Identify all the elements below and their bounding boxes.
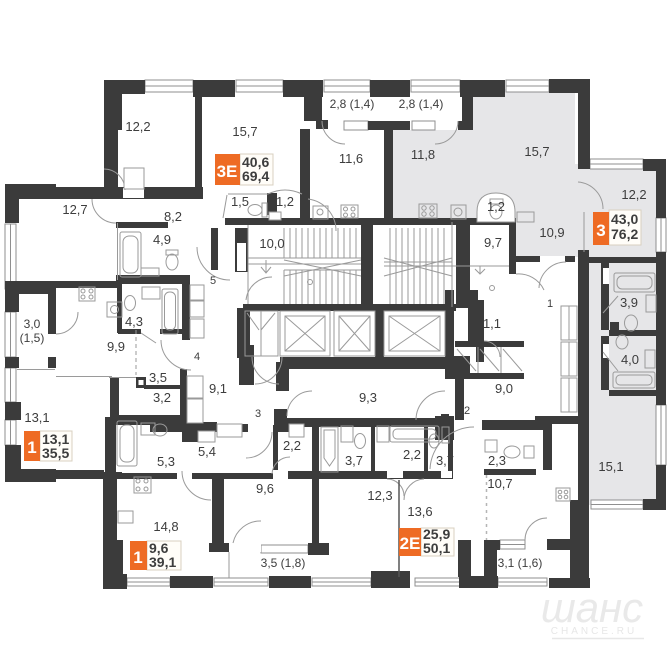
svg-text:1,1: 1,1 (483, 316, 501, 331)
svg-text:1: 1 (27, 438, 36, 457)
svg-text:3,9: 3,9 (620, 295, 638, 310)
svg-text:4,9: 4,9 (153, 232, 171, 247)
svg-text:15,7: 15,7 (232, 124, 257, 139)
svg-text:шанс: шанс (541, 584, 643, 631)
svg-text:2,3: 2,3 (488, 453, 506, 468)
svg-text:14,8: 14,8 (153, 519, 178, 534)
svg-text:13,6: 13,6 (407, 504, 432, 519)
svg-text:2Е: 2Е (400, 534, 421, 553)
svg-text:3,0: 3,0 (24, 317, 41, 331)
svg-text:8,2: 8,2 (164, 209, 182, 224)
svg-text:10,7: 10,7 (487, 476, 512, 491)
svg-text:11,8: 11,8 (411, 147, 435, 162)
svg-text:11,6: 11,6 (339, 151, 363, 166)
svg-text:CHANCE.RU: CHANCE.RU (551, 626, 637, 637)
svg-text:9,9: 9,9 (107, 339, 125, 354)
svg-text:39,1: 39,1 (149, 554, 176, 570)
svg-text:12,2: 12,2 (125, 119, 150, 134)
svg-text:76,2: 76,2 (611, 226, 638, 242)
svg-text:69,4: 69,4 (242, 168, 269, 184)
svg-text:15,7: 15,7 (524, 144, 549, 159)
svg-text:9,0: 9,0 (495, 381, 513, 396)
svg-text:1,2: 1,2 (487, 199, 505, 214)
svg-text:1: 1 (547, 298, 553, 310)
svg-text:3,2: 3,2 (153, 390, 171, 405)
svg-text:1,5: 1,5 (231, 194, 249, 209)
svg-text:15,1: 15,1 (598, 459, 623, 474)
svg-text:3,1 (1,6): 3,1 (1,6) (498, 556, 543, 570)
svg-text:3Е: 3Е (217, 162, 238, 181)
svg-text:5,3: 5,3 (157, 454, 175, 469)
svg-text:43,0: 43,0 (611, 211, 638, 227)
svg-text:2: 2 (464, 405, 470, 417)
svg-text:3,5: 3,5 (149, 370, 167, 385)
svg-text:12,3: 12,3 (367, 488, 392, 503)
svg-text:9,7: 9,7 (484, 235, 502, 250)
svg-text:1: 1 (133, 548, 142, 567)
svg-text:2,2: 2,2 (283, 438, 301, 453)
svg-text:10,9: 10,9 (539, 225, 564, 240)
svg-text:10,0: 10,0 (259, 236, 284, 251)
svg-text:4: 4 (194, 351, 200, 363)
svg-text:3,7: 3,7 (436, 453, 454, 468)
svg-text:12,7: 12,7 (62, 202, 87, 217)
svg-text:2,8 (1,4): 2,8 (1,4) (399, 97, 444, 111)
svg-text:2,8 (1,4): 2,8 (1,4) (330, 97, 375, 111)
svg-text:3,7: 3,7 (345, 453, 363, 468)
svg-text:35,5: 35,5 (42, 445, 69, 461)
svg-text:5: 5 (210, 275, 216, 287)
svg-text:9,3: 9,3 (359, 390, 377, 405)
svg-text:2,2: 2,2 (403, 447, 421, 462)
svg-text:5,4: 5,4 (198, 444, 216, 459)
svg-text:3: 3 (596, 221, 605, 240)
svg-text:13,1: 13,1 (24, 410, 49, 425)
svg-text:(1,5): (1,5) (20, 331, 45, 345)
svg-text:4,3: 4,3 (125, 314, 143, 329)
svg-text:9,6: 9,6 (256, 481, 274, 496)
svg-text:1,2: 1,2 (276, 194, 294, 209)
svg-text:3,5 (1,8): 3,5 (1,8) (261, 556, 306, 570)
svg-text:4,0: 4,0 (621, 352, 639, 367)
svg-text:3: 3 (255, 408, 261, 420)
svg-text:9,1: 9,1 (209, 381, 227, 396)
svg-text:50,1: 50,1 (423, 540, 450, 556)
svg-text:12,2: 12,2 (621, 187, 646, 202)
